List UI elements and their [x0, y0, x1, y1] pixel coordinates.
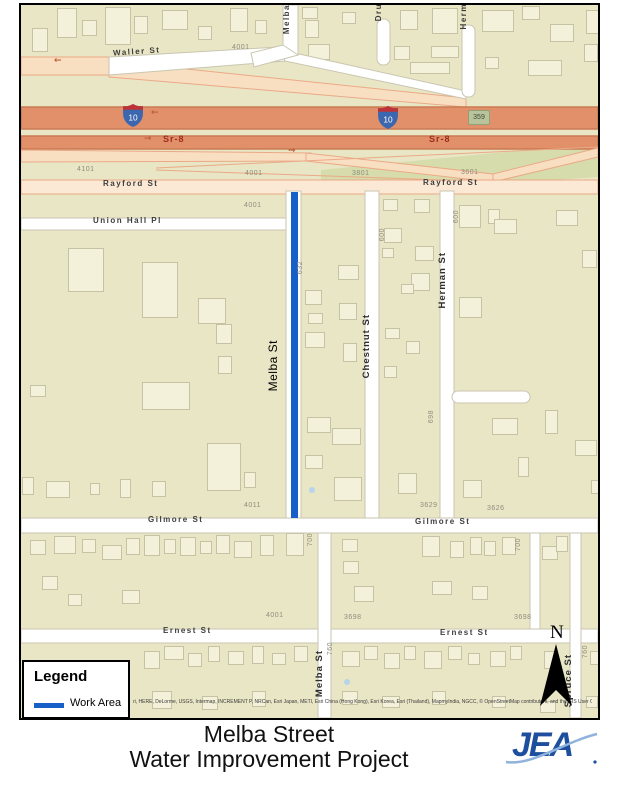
- building: [32, 28, 48, 52]
- building: [307, 417, 331, 433]
- building: [490, 651, 506, 667]
- building: [144, 651, 160, 669]
- building: [208, 646, 220, 662]
- building: [244, 472, 256, 488]
- building: [164, 646, 184, 660]
- building: [422, 536, 440, 557]
- building: [584, 44, 598, 62]
- north-indicator: N: [538, 622, 574, 708]
- building: [255, 20, 267, 34]
- building: [142, 382, 190, 410]
- building: [415, 246, 434, 261]
- building: [590, 651, 600, 665]
- building: [334, 477, 362, 501]
- north-label: N: [550, 622, 564, 644]
- building: [126, 538, 140, 555]
- building: [394, 46, 410, 60]
- building: [492, 418, 518, 435]
- building: [432, 8, 458, 34]
- interstate-10-shield: 10: [122, 104, 144, 127]
- building: [308, 44, 330, 60]
- building: [332, 428, 361, 445]
- building: [518, 457, 529, 477]
- building: [30, 385, 46, 397]
- title-line2: Water Improvement Project: [19, 747, 519, 772]
- building: [120, 479, 131, 498]
- building: [164, 539, 176, 554]
- legend-item-label: Work Area: [70, 697, 121, 709]
- building: [400, 10, 418, 30]
- building: [556, 536, 568, 552]
- map-attribution: ri, HERE, DeLorme, USGS, Intermap, INCRE…: [133, 699, 592, 705]
- building: [339, 303, 357, 320]
- building: [342, 539, 358, 552]
- building: [122, 590, 140, 604]
- building: [459, 205, 481, 228]
- building: [338, 265, 359, 280]
- map-title: Melba Street Water Improvement Project: [19, 722, 519, 772]
- building: [384, 653, 400, 669]
- building: [482, 10, 514, 32]
- building: [343, 561, 359, 574]
- building: [364, 646, 378, 660]
- building: [305, 20, 319, 38]
- building: [545, 410, 558, 434]
- building: [448, 646, 462, 660]
- building: [90, 483, 100, 495]
- building: [162, 10, 188, 30]
- map-canvas: [19, 3, 600, 720]
- building: [207, 443, 241, 491]
- building: [198, 298, 226, 324]
- building: [468, 653, 480, 665]
- building: [152, 481, 166, 497]
- building: [200, 541, 212, 554]
- building: [384, 228, 402, 243]
- jea-logo: JEA: [502, 722, 602, 770]
- building: [198, 26, 212, 40]
- svg-text:10: 10: [128, 113, 138, 123]
- building: [142, 262, 178, 318]
- building: [432, 581, 452, 595]
- building: [57, 8, 77, 38]
- route-359-badge: 359: [468, 110, 490, 125]
- building: [260, 535, 274, 556]
- building: [105, 7, 131, 45]
- building: [484, 541, 496, 556]
- building: [582, 250, 597, 268]
- building: [252, 646, 264, 664]
- building: [22, 477, 34, 495]
- building: [234, 541, 252, 558]
- building: [68, 594, 82, 606]
- building: [82, 539, 96, 553]
- building: [556, 210, 578, 226]
- building: [459, 297, 482, 318]
- building: [414, 199, 430, 213]
- work-area-swatch: [34, 703, 64, 708]
- building: [294, 646, 308, 662]
- legend-title: Legend: [34, 668, 87, 685]
- building: [385, 328, 400, 339]
- building: [550, 24, 574, 42]
- building: [46, 481, 70, 498]
- building: [305, 455, 323, 469]
- building: [431, 46, 459, 58]
- building: [401, 284, 414, 294]
- building: [54, 536, 76, 554]
- building: [382, 248, 394, 258]
- buildings-layer: [21, 5, 598, 718]
- building: [510, 646, 522, 660]
- building: [522, 6, 540, 20]
- legend: Legend Work Area: [22, 660, 130, 719]
- building: [383, 199, 398, 211]
- logo-registered-mark: [593, 760, 596, 763]
- building: [144, 535, 160, 556]
- building: [134, 16, 148, 34]
- building: [228, 651, 244, 665]
- building: [68, 248, 104, 292]
- building: [305, 332, 325, 348]
- building: [188, 653, 202, 667]
- page: Waller St Sr-8 Sr-8 Rayford St Rayford S…: [0, 0, 618, 800]
- building: [218, 356, 232, 374]
- building: [30, 540, 46, 555]
- building: [406, 341, 420, 354]
- north-arrow-icon: [538, 644, 574, 708]
- building: [286, 533, 304, 556]
- building: [591, 480, 600, 494]
- building: [410, 62, 450, 74]
- building: [424, 651, 442, 669]
- building: [586, 10, 600, 34]
- building: [102, 545, 122, 560]
- building: [305, 290, 322, 305]
- building: [302, 7, 318, 19]
- interstate-10-shield: 10: [377, 106, 399, 129]
- building: [450, 541, 464, 558]
- building: [470, 537, 482, 555]
- svg-text:10: 10: [383, 115, 393, 125]
- building: [272, 653, 286, 665]
- building: [485, 57, 499, 69]
- title-line1: Melba Street: [19, 722, 519, 747]
- building: [354, 586, 374, 602]
- building: [308, 313, 323, 324]
- building: [82, 20, 97, 36]
- building: [472, 586, 488, 600]
- building: [575, 440, 597, 456]
- building: [404, 646, 416, 660]
- building: [528, 60, 562, 76]
- building: [342, 12, 356, 24]
- building: [463, 480, 482, 498]
- building: [384, 366, 397, 378]
- building: [230, 8, 248, 32]
- building: [398, 473, 417, 494]
- building: [42, 576, 58, 590]
- building: [180, 537, 196, 556]
- building: [494, 219, 517, 234]
- building: [502, 537, 516, 555]
- building: [216, 324, 232, 344]
- building: [342, 651, 360, 667]
- building: [343, 343, 357, 362]
- building: [216, 535, 230, 554]
